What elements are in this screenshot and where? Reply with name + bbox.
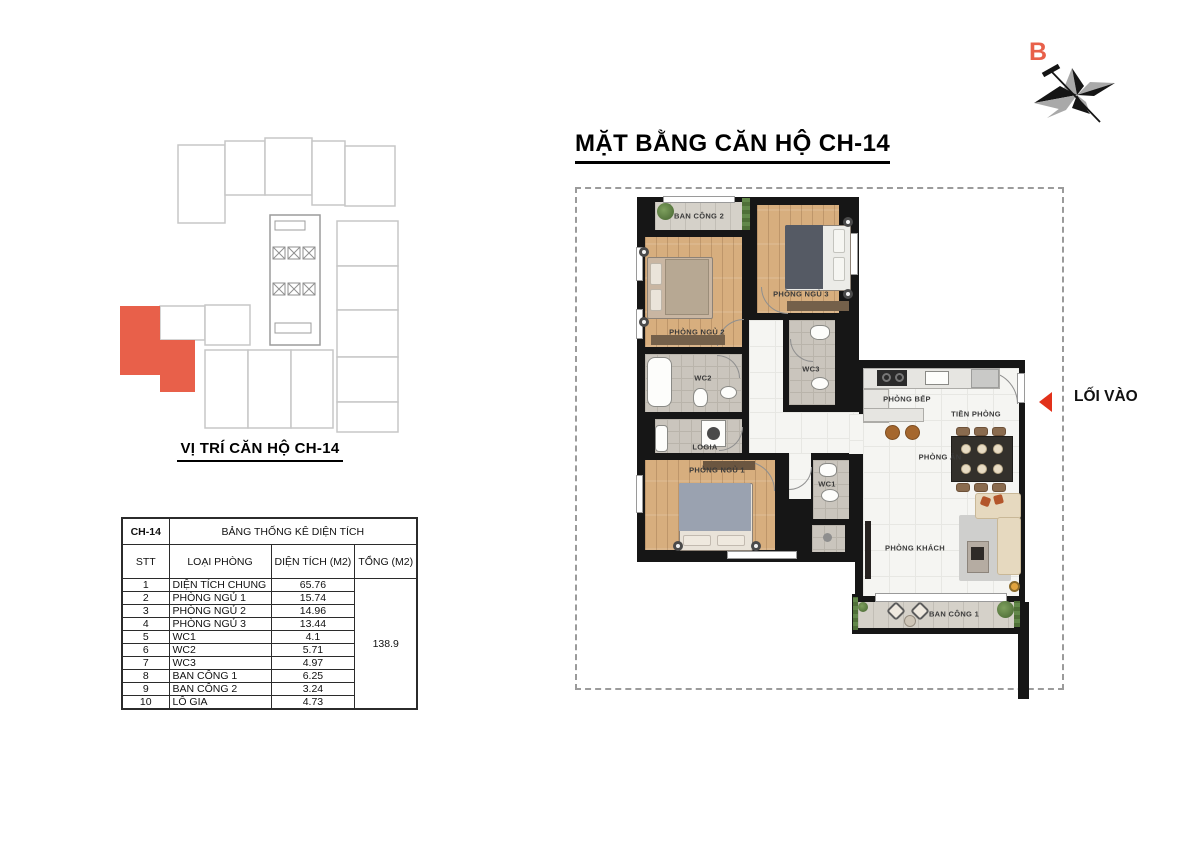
cell-area: 4.1	[271, 631, 355, 644]
page: B MẶT BẰNG CĂN HỘ CH-14	[0, 0, 1200, 848]
dining-chair	[992, 483, 1006, 492]
pillow	[650, 289, 662, 311]
toilet	[810, 325, 830, 340]
cell-room: PHÒNG NGỦ 3	[169, 618, 271, 631]
window	[636, 475, 643, 513]
unit-location-minimap	[115, 133, 405, 433]
blanket	[785, 225, 823, 289]
room-label-wc1: WC1	[818, 480, 836, 489]
bar-stool	[885, 425, 900, 440]
room-label-logia: LOGIA	[692, 443, 717, 452]
hedge	[853, 597, 858, 630]
blanket	[665, 259, 709, 315]
cell-room: WC1	[169, 631, 271, 644]
room-label-balcony2: BAN CÔNG 2	[674, 212, 724, 221]
page-title: MẶT BẰNG CĂN HỘ CH-14	[575, 130, 890, 164]
cell-stt: 2	[122, 592, 169, 605]
room-label-bedroom1: PHÒNG NGỦ 1	[689, 466, 745, 475]
entrance-arrow-icon	[1039, 392, 1052, 412]
balcony2-railing	[663, 196, 735, 203]
cell-stt: 3	[122, 605, 169, 618]
cell-room: DIỆN TÍCH CHUNG	[169, 579, 271, 592]
entrance-label: LỐI VÀO	[1074, 388, 1138, 406]
kitchen-island	[863, 408, 924, 422]
cell-room: PHÒNG NGỦ 1	[169, 592, 271, 605]
room-label-kitchen: PHÒNG BẾP	[883, 395, 931, 404]
col-header-room: LOẠI PHÒNG	[169, 545, 271, 579]
cell-area: 65.76	[271, 579, 355, 592]
nightstand-lamp	[673, 541, 683, 551]
shower-drain	[823, 533, 832, 542]
plant	[997, 601, 1014, 618]
blanket	[679, 483, 751, 531]
cell-area: 13.44	[271, 618, 355, 631]
cell-room: BAN CÔNG 1	[169, 670, 271, 683]
toilet	[819, 463, 837, 477]
dining-chair	[956, 483, 970, 492]
wardrobe	[787, 301, 849, 311]
hedge	[742, 198, 750, 230]
pillow	[650, 263, 662, 285]
nightstand-lamp	[639, 247, 649, 257]
plate	[993, 444, 1003, 454]
col-header-stt: STT	[122, 545, 169, 579]
table-row: 1 DIỆN TÍCH CHUNG 65.76 138.9	[122, 579, 417, 592]
burner	[882, 373, 891, 382]
window	[727, 551, 797, 559]
cell-area: 14.96	[271, 605, 355, 618]
dining-chair	[992, 427, 1006, 436]
balcony1-slider-door	[875, 593, 1007, 602]
nightstand-lamp	[639, 317, 649, 327]
cell-stt: 9	[122, 683, 169, 696]
plate	[993, 464, 1003, 474]
plant	[657, 203, 674, 220]
minimap-caption-text: VỊ TRÍ CĂN HỘ CH-14	[177, 440, 342, 462]
nightstand-lamp	[843, 217, 853, 227]
table-title: BẢNG THỐNG KÊ DIỆN TÍCH	[169, 518, 417, 545]
room-label-wc2: WC2	[694, 374, 712, 383]
sink	[811, 377, 829, 390]
entry-opening	[1017, 373, 1025, 403]
compass-icon	[1018, 48, 1128, 133]
floor-plan: BAN CÔNG 2 PHÒNG NGỦ 2 PHÒNG NGỦ 3 WC2 W…	[577, 189, 1062, 688]
coffee-table-tray	[971, 547, 984, 560]
minimap-core	[270, 215, 320, 345]
hedge	[1014, 601, 1020, 627]
plan-boundary: BAN CÔNG 2 PHÒNG NGỦ 2 PHÒNG NGỦ 3 WC2 W…	[575, 187, 1064, 690]
col-header-total: TỔNG (M2)	[355, 545, 417, 579]
pillow	[717, 535, 745, 546]
wardrobe	[651, 335, 725, 345]
table-unit-label: CH-14	[122, 518, 169, 545]
room-label-bedroom2: PHÒNG NGỦ 2	[669, 328, 725, 337]
cell-area: 4.97	[271, 657, 355, 670]
cell-stt: 6	[122, 644, 169, 657]
room-label-foyer: TIỀN PHÒNG	[951, 410, 1001, 419]
plate	[977, 444, 987, 454]
room-label-dining: PHÒNG ĂN	[919, 453, 962, 462]
kitchen-sink	[925, 371, 949, 385]
col-header-area: DIỆN TÍCH (M2)	[271, 545, 355, 579]
burner	[895, 373, 904, 382]
nightstand-lamp	[751, 541, 761, 551]
water-heater	[655, 425, 668, 452]
bar-stool	[905, 425, 920, 440]
room-label-balcony1: BAN CÔNG 1	[929, 610, 979, 619]
washer-door	[707, 427, 720, 440]
cell-room: BAN CÔNG 2	[169, 683, 271, 696]
tv-console	[865, 521, 871, 579]
area-table: CH-14 BẢNG THỐNG KÊ DIỆN TÍCH STT LOẠI P…	[121, 517, 418, 710]
cell-area: 3.24	[271, 683, 355, 696]
toilet	[693, 388, 708, 407]
cell-area: 15.74	[271, 592, 355, 605]
pillow	[683, 535, 711, 546]
cell-area: 5.71	[271, 644, 355, 657]
window	[850, 233, 858, 275]
cell-stt: 1	[122, 579, 169, 592]
cell-stt: 5	[122, 631, 169, 644]
room-label-wc3: WC3	[802, 365, 820, 374]
plate	[961, 444, 971, 454]
dining-chair	[956, 427, 970, 436]
balcony-table	[904, 615, 916, 627]
room-label-living: PHÒNG KHÁCH	[885, 544, 945, 553]
cell-room: WC3	[169, 657, 271, 670]
fridge	[971, 369, 999, 388]
cell-stt: 8	[122, 670, 169, 683]
room-label-bedroom3: PHÒNG NGỦ 3	[773, 290, 829, 299]
floor-lamp	[1009, 581, 1020, 592]
pillow	[833, 229, 845, 253]
plant	[858, 602, 868, 612]
cell-stt: 7	[122, 657, 169, 670]
cell-area: 6.25	[271, 670, 355, 683]
cell-room: WC2	[169, 644, 271, 657]
cell-area: 4.73	[271, 696, 355, 710]
minimap-caption: VỊ TRÍ CĂN HỘ CH-14	[115, 440, 405, 462]
cell-total: 138.9	[355, 579, 417, 710]
plate	[977, 464, 987, 474]
cell-stt: 10	[122, 696, 169, 710]
sink	[720, 386, 737, 399]
dining-chair	[974, 427, 988, 436]
cell-stt: 4	[122, 618, 169, 631]
bathtub	[647, 357, 672, 407]
sofa-chaise	[997, 517, 1021, 575]
cell-room: PHÒNG NGỦ 2	[169, 605, 271, 618]
hall-floor	[749, 412, 859, 453]
cell-room: LÔ GIA	[169, 696, 271, 710]
pillow	[833, 257, 845, 281]
plate	[961, 464, 971, 474]
sink	[821, 489, 839, 502]
nightstand-lamp	[843, 289, 853, 299]
dining-chair	[974, 483, 988, 492]
